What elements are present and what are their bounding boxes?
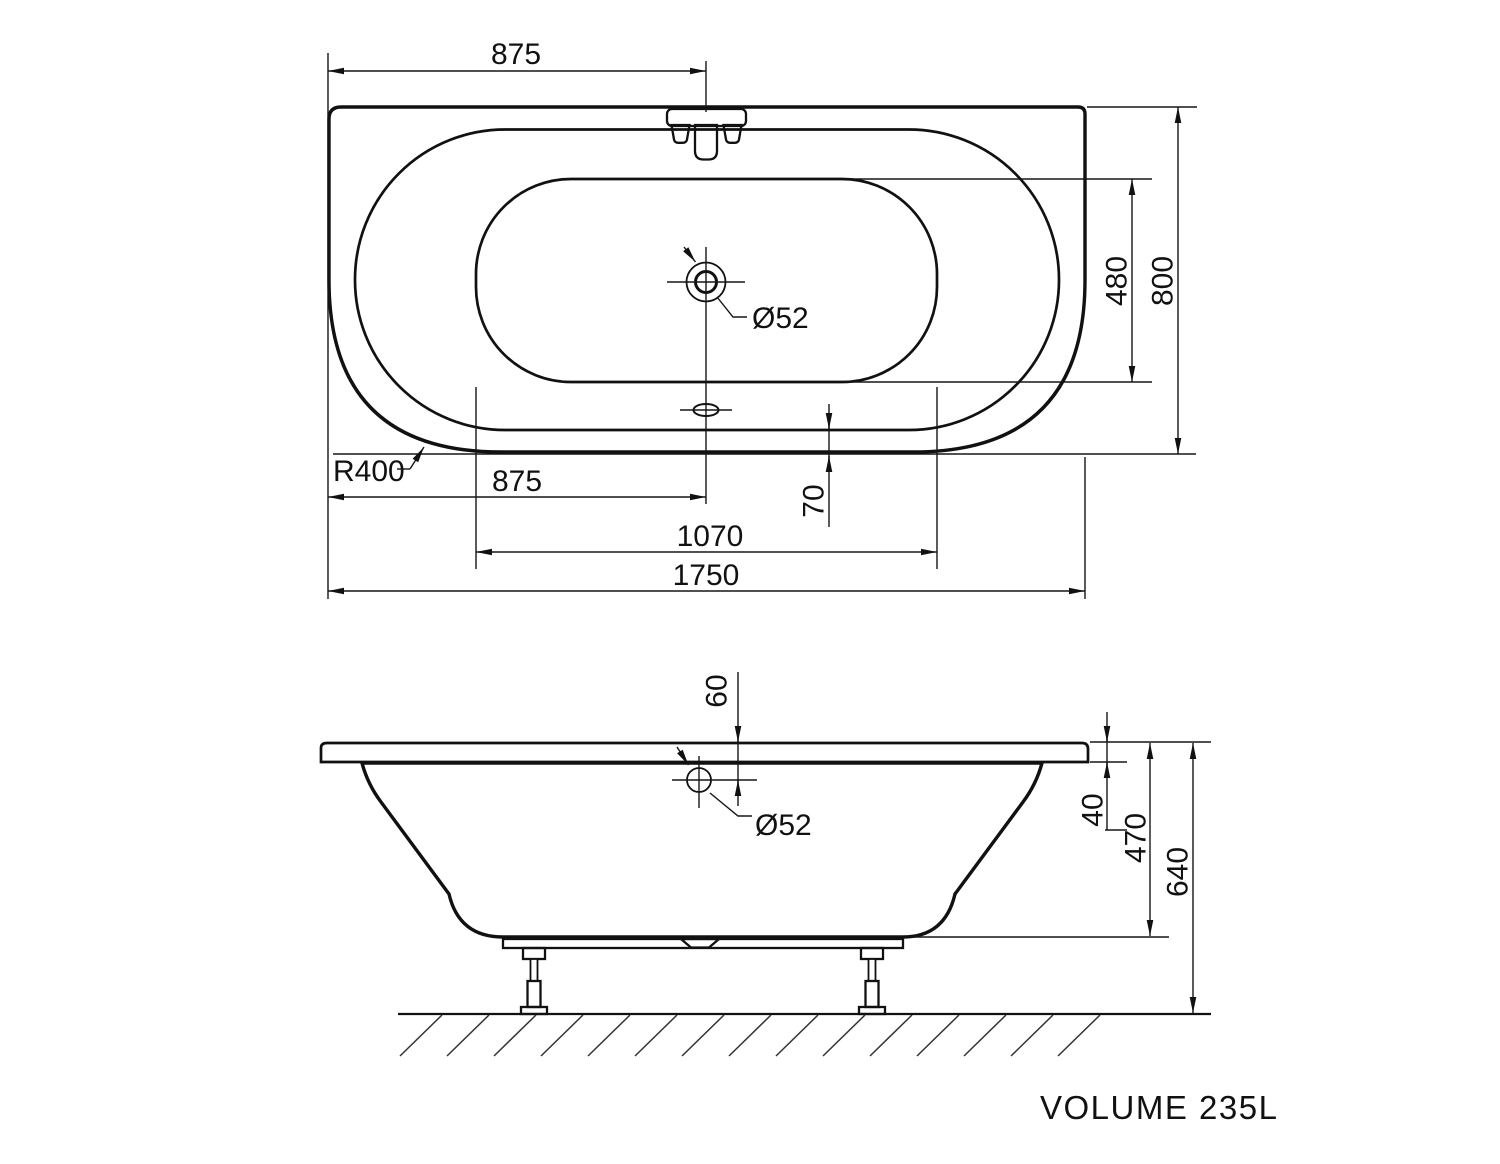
support-leg-left [521,948,547,1014]
technical-drawing-canvas: 875 480 800 Ø52 R400 875 70 1070 1750 [0,0,1500,1164]
dim-480-label: 480 [1101,256,1134,306]
dim-875-drain-label: 875 [492,465,542,498]
corner-radius-label: R400 [333,455,405,488]
floor-hatching [400,1015,1100,1056]
dim-40-label: 40 [1077,793,1110,826]
faucet-knob-left [672,125,690,143]
volume-label: VOLUME 235L [1040,1089,1278,1126]
dim-640-label: 640 [1162,847,1195,897]
faucet-icon [667,109,746,160]
rim-slab [321,743,1088,762]
support-leg-right [859,948,885,1014]
dim-60-label: 60 [701,674,734,707]
plan-view: 875 480 800 Ø52 R400 875 70 1070 1750 [328,38,1197,599]
faucet-knob-right [724,125,742,143]
dim-1750-label: 1750 [673,559,740,592]
dim-875-top-label: 875 [491,38,541,71]
drain-diameter-label: Ø52 [752,302,809,335]
dim-800-label: 800 [1147,256,1180,306]
dim-70-label: 70 [798,484,831,517]
side-view: 60 Ø52 40 470 640 [321,672,1211,1056]
dim-1070-label: 1070 [677,520,744,553]
dim-470-label: 470 [1120,813,1153,863]
hole-diameter-label: Ø52 [755,809,812,842]
bathtub-technical-drawing-page: 875 480 800 Ø52 R400 875 70 1070 1750 [0,0,1500,1164]
drain-fitting [681,939,719,948]
